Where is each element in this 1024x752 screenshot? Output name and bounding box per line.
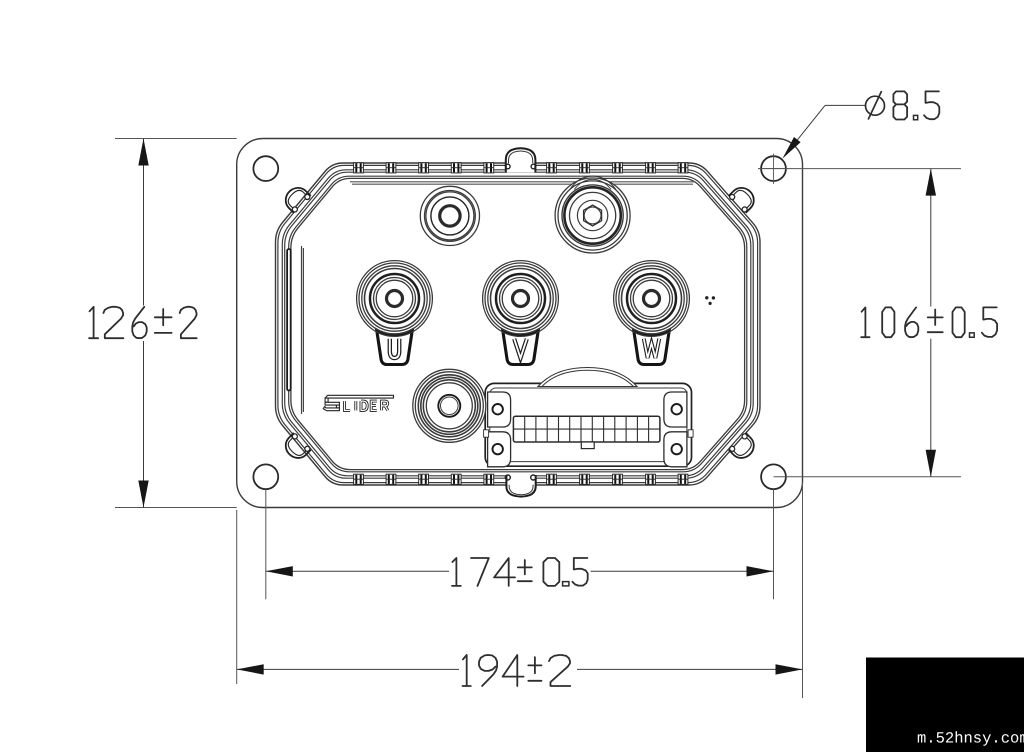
svg-text:m.52hnsy.com: m.52hnsy.com (917, 730, 1024, 748)
